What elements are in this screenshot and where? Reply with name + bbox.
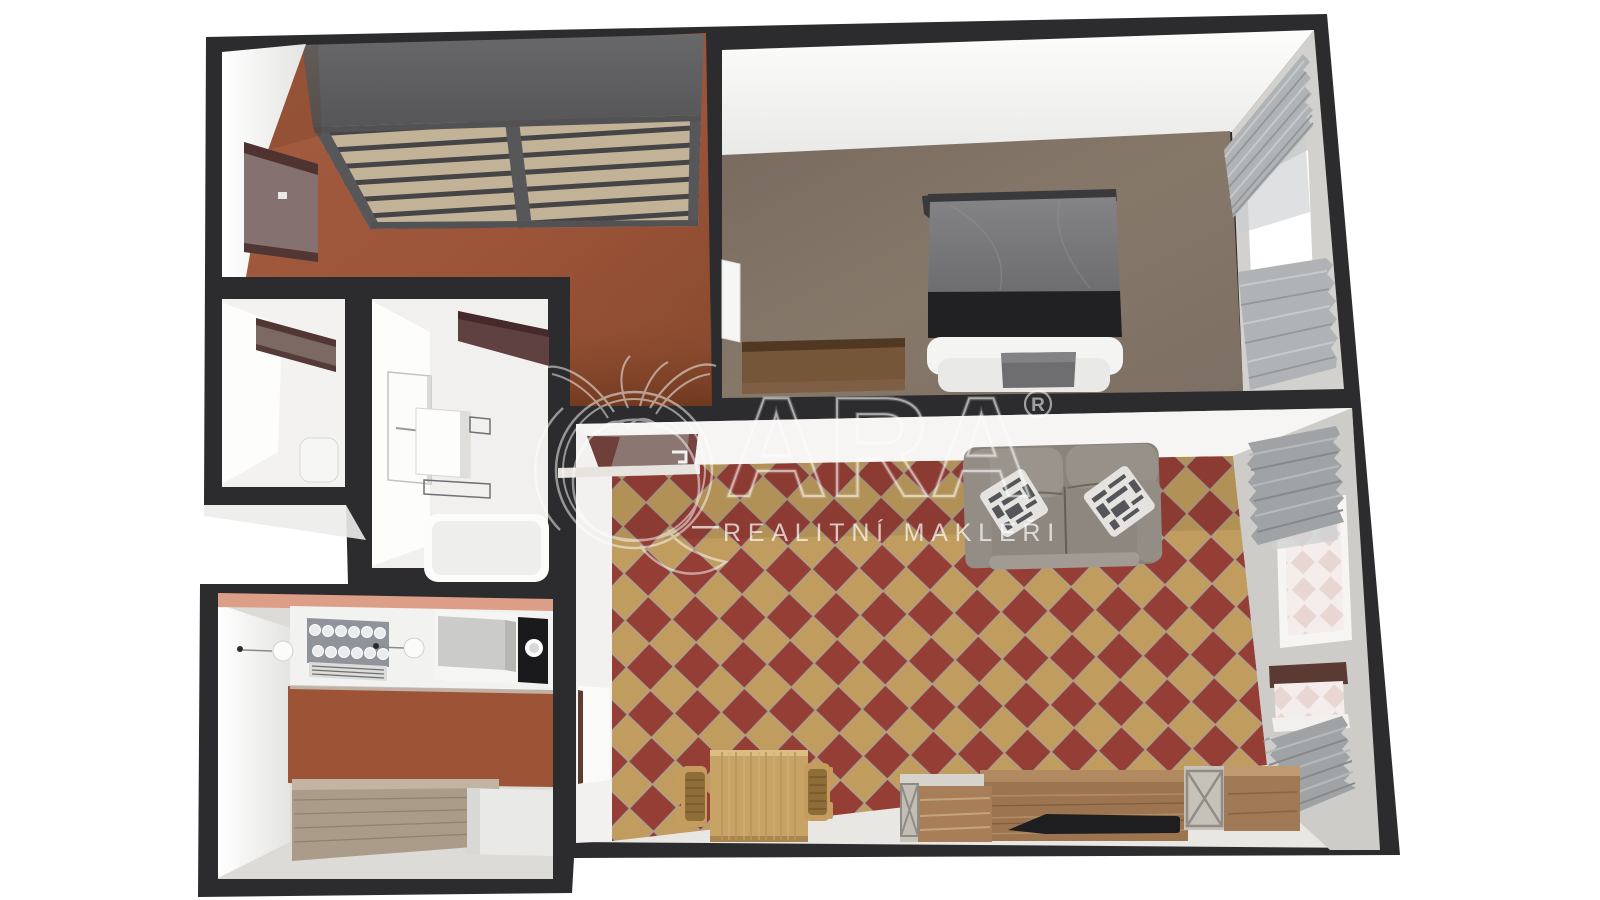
svg-text:R: R	[1031, 395, 1045, 416]
svg-text:REALITNÍ MAKLÉŘI: REALITNÍ MAKLÉŘI	[723, 518, 1061, 547]
svg-text:ARA: ARA	[725, 368, 1033, 527]
